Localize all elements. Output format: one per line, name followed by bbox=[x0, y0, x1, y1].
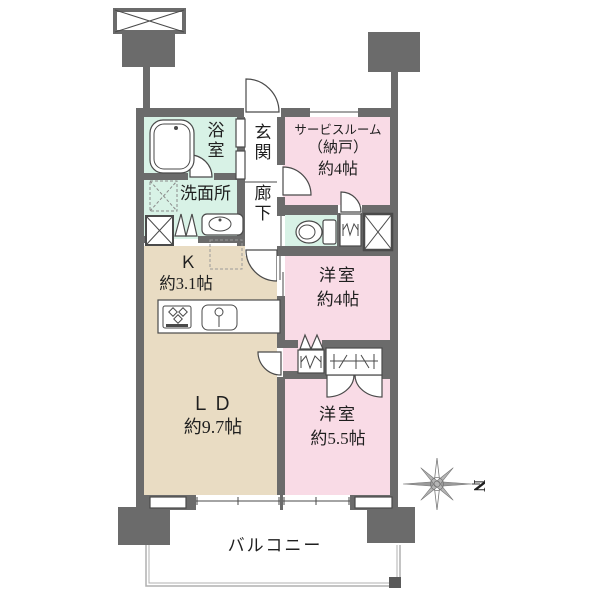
hanger-closet-icon bbox=[340, 214, 361, 246]
kitchen-size-label: 約3.1帖 bbox=[146, 275, 226, 294]
front-door-arc bbox=[246, 79, 279, 112]
balcony-label: バルコニー bbox=[200, 536, 350, 556]
service-room-label: サービスルーム （納戸） 約4帖 bbox=[288, 123, 388, 179]
hanger-closet-icon bbox=[298, 350, 324, 373]
living-dining-label: ＬＤ bbox=[163, 394, 263, 416]
structure-block bbox=[122, 32, 175, 67]
toilet-icon bbox=[296, 220, 336, 244]
bedroom4-size: 約4帖 bbox=[290, 290, 386, 310]
pipe-shaft-icon bbox=[146, 216, 173, 245]
bedroom4-label: 洋室 約4帖 bbox=[290, 266, 386, 309]
structure-block bbox=[367, 507, 415, 543]
bedroom55-label: 洋室 約5.5帖 bbox=[290, 405, 386, 448]
service-room-size: 約4帖 bbox=[288, 161, 388, 179]
kitchen-counter bbox=[158, 300, 280, 333]
kitchen-label: Ｋ bbox=[158, 253, 218, 273]
pipe-shaft-icon bbox=[364, 214, 392, 250]
bedroom55-name: 洋室 bbox=[290, 405, 386, 425]
window-panel bbox=[150, 497, 186, 508]
bathtub-icon bbox=[150, 120, 194, 173]
compass-north-label: N bbox=[469, 480, 489, 492]
floor-plan: 浴室 洗面所 玄関 廊下 サービスルーム （納戸） 約4帖 Ｋ 約3.1帖 ＬＤ… bbox=[0, 0, 600, 600]
drain-box bbox=[389, 577, 401, 588]
structure-block bbox=[118, 507, 170, 545]
structure-block bbox=[368, 32, 420, 72]
bedroom55-size: 約5.5帖 bbox=[290, 429, 386, 449]
service-room-name2: （納戸） bbox=[288, 140, 388, 157]
bedroom4-name: 洋室 bbox=[290, 266, 386, 286]
living-dining-size-label: 約9.7帖 bbox=[163, 417, 263, 438]
window-panel bbox=[355, 497, 392, 508]
hallway-label: 廊下 bbox=[251, 184, 271, 224]
entrance-label: 玄関 bbox=[251, 123, 271, 163]
service-room-name: サービスルーム bbox=[288, 123, 388, 137]
vanity-sink-icon bbox=[202, 214, 243, 235]
washroom-label: 洗面所 bbox=[163, 184, 248, 204]
wide-closet-icon bbox=[326, 348, 382, 375]
toilet-door bbox=[277, 216, 285, 246]
balcony-sliding-window bbox=[196, 497, 280, 505]
bathroom-label: 浴室 bbox=[204, 121, 224, 161]
balcony-sliding-window bbox=[283, 497, 350, 505]
bedroom4-sliding-door bbox=[277, 256, 285, 296]
